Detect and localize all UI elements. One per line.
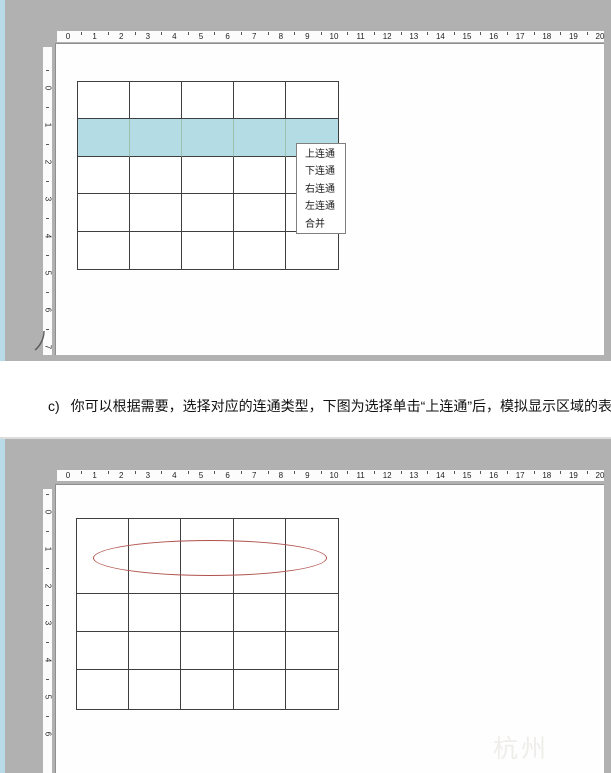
ruler-number: 2	[43, 582, 53, 591]
ruler-number: 19	[565, 471, 581, 480]
table-cell[interactable]	[182, 232, 234, 269]
ruler-tick	[587, 471, 588, 474]
ruler-number: 18	[539, 32, 555, 41]
ruler-tick	[46, 218, 49, 219]
context-menu-item[interactable]: 上连通	[305, 146, 345, 163]
ruler-tick	[560, 32, 561, 35]
ruler-tick	[241, 471, 242, 474]
ruler-number: 6	[43, 306, 53, 315]
table-cell[interactable]	[234, 157, 286, 194]
ruler-tick	[427, 32, 428, 35]
table-cell[interactable]	[181, 670, 233, 708]
context-menu-item[interactable]: 下连通	[305, 163, 345, 180]
window-edge-strip	[0, 0, 5, 361]
ruler-tick	[46, 70, 49, 71]
ruler-tick	[374, 471, 375, 474]
window-edge-strip	[0, 439, 5, 773]
ruler-tick	[534, 471, 535, 474]
ruler-number: 1	[43, 545, 53, 554]
ruler-number: 1	[43, 121, 53, 130]
screenshot-after: 01234567891011121314151617181920 0123456…	[0, 437, 611, 773]
ruler-number: 6	[220, 471, 236, 480]
table-cell[interactable]	[234, 632, 286, 670]
context-menu: 上连通下连通右连通左连通合并	[296, 143, 346, 234]
ruler-tick	[108, 471, 109, 474]
ruler-tick	[108, 32, 109, 35]
ruler-number: 5	[193, 471, 209, 480]
ruler-tick	[214, 471, 215, 474]
vertical-ruler: 0123456	[43, 489, 52, 773]
ruler-number: 1	[87, 32, 103, 41]
table-cell[interactable]	[130, 232, 182, 269]
caption-list-marker: c)	[48, 396, 60, 417]
ruler-tick	[161, 471, 162, 474]
vertical-ruler: 01234567	[43, 47, 52, 355]
horizontal-ruler: 01234567891011121314151617181920	[57, 470, 604, 481]
ruler-number: 7	[246, 32, 262, 41]
ruler-number: 20	[592, 32, 608, 41]
table-cell[interactable]	[182, 194, 234, 231]
table-cell[interactable]	[286, 232, 338, 269]
ruler-tick	[268, 471, 269, 474]
ruler-tick	[507, 32, 508, 35]
ruler-number: 15	[459, 471, 475, 480]
ruler-tick	[454, 471, 455, 474]
ruler-number: 5	[43, 269, 53, 278]
context-menu-item[interactable]: 合并	[305, 216, 345, 233]
table-cell[interactable]	[78, 194, 130, 231]
ruler-tick	[46, 181, 49, 182]
table-cell[interactable]	[78, 119, 130, 156]
ruler-tick	[214, 32, 215, 35]
ruler-tick	[374, 32, 375, 35]
ruler-number: 12	[379, 32, 395, 41]
ruler-number: 8	[273, 471, 289, 480]
ruler-number: 19	[565, 32, 581, 41]
ruler-tick	[480, 32, 481, 35]
ruler-number: 0	[60, 471, 76, 480]
ruler-tick	[188, 32, 189, 35]
ruler-number: 3	[140, 32, 156, 41]
table-cell[interactable]	[77, 594, 129, 632]
horizontal-ruler: 01234567891011121314151617181920	[57, 31, 604, 42]
table-cell[interactable]	[182, 157, 234, 194]
ruler-number: 4	[166, 471, 182, 480]
table-cell[interactable]	[182, 119, 234, 156]
ruler-tick	[587, 32, 588, 35]
annotation-ellipse	[93, 540, 327, 576]
ruler-number: 4	[43, 232, 53, 241]
table-cell[interactable]	[181, 594, 233, 632]
ruler-number: 20	[592, 471, 608, 480]
ruler-number: 3	[140, 471, 156, 480]
table-cell[interactable]	[78, 232, 130, 269]
table-cell[interactable]	[77, 632, 129, 670]
ruler-tick	[427, 471, 428, 474]
ruler-tick	[46, 716, 49, 717]
ruler-tick	[81, 471, 82, 474]
ruler-tick	[347, 32, 348, 35]
table-cell[interactable]	[234, 82, 286, 119]
caption-text: c) 你可以根据需要，选择对应的连通类型，下图为选择单击“上连通”后，模拟显示区…	[48, 396, 611, 417]
ruler-number: 13	[406, 32, 422, 41]
ruler-number: 2	[113, 32, 129, 41]
ruler-number: 10	[326, 32, 342, 41]
ruler-number: 1	[87, 471, 103, 480]
table-cell[interactable]	[181, 632, 233, 670]
screenshot-before: 01234567891011121314151617181920 0123456…	[0, 0, 611, 361]
ruler-tick	[46, 107, 49, 108]
ruler-number: 11	[353, 32, 369, 41]
ruler-tick	[321, 32, 322, 35]
ruler-tick	[294, 471, 295, 474]
table-cell[interactable]	[286, 82, 338, 119]
ruler-number: 4	[43, 656, 53, 665]
ruler-number: 2	[113, 471, 129, 480]
table-cell[interactable]	[78, 82, 130, 119]
ruler-tick	[46, 531, 49, 532]
ruler-number: 0	[60, 32, 76, 41]
ruler-number: 7	[246, 471, 262, 480]
ruler-tick	[507, 471, 508, 474]
ruler-tick	[46, 642, 49, 643]
ruler-number: 15	[459, 32, 475, 41]
ruler-number: 2	[43, 158, 53, 167]
table-cell[interactable]	[286, 670, 338, 708]
ruler-tick	[480, 471, 481, 474]
ruler-tick	[135, 471, 136, 474]
ruler-tick	[46, 144, 49, 145]
context-menu-item[interactable]: 右连通	[305, 181, 345, 198]
ruler-tick	[347, 471, 348, 474]
table-cell[interactable]	[129, 632, 181, 670]
table-cell[interactable]	[234, 119, 286, 156]
ruler-tick	[321, 471, 322, 474]
ruler-number: 8	[273, 32, 289, 41]
ruler-tick	[401, 32, 402, 35]
caption-body: 你可以根据需要，选择对应的连通类型，下图为选择单击“上连通”后，模拟显示区域的表…	[71, 396, 611, 417]
ruler-number: 9	[299, 471, 315, 480]
ruler-number: 6	[43, 730, 53, 739]
table-cell[interactable]	[130, 194, 182, 231]
ruler-tick	[46, 679, 49, 680]
ruler-number: 16	[486, 32, 502, 41]
ruler-number: 13	[406, 471, 422, 480]
ruler-number: 0	[43, 508, 53, 517]
ruler-number: 6	[220, 32, 236, 41]
ruler-number: 12	[379, 471, 395, 480]
ruler-tick	[241, 32, 242, 35]
table-cell[interactable]	[182, 82, 234, 119]
ruler-number: 10	[326, 471, 342, 480]
caption-band: c) 你可以根据需要，选择对应的连通类型，下图为选择单击“上连通”后，模拟显示区…	[0, 361, 611, 437]
ruler-number: 9	[299, 32, 315, 41]
ruler-number: 14	[432, 471, 448, 480]
table-cell[interactable]	[234, 594, 286, 632]
ruler-tick	[560, 471, 561, 474]
ruler-number: 3	[43, 195, 53, 204]
ruler-number: 5	[193, 32, 209, 41]
table-cell[interactable]	[234, 232, 286, 269]
ruler-tick	[46, 605, 49, 606]
ruler-number: 17	[512, 32, 528, 41]
table-cell[interactable]	[129, 594, 181, 632]
ruler-tick	[46, 494, 49, 495]
ruler-tick	[81, 32, 82, 35]
table-cell[interactable]	[130, 82, 182, 119]
ruler-number: 3	[43, 619, 53, 628]
ruler-number: 0	[43, 84, 53, 93]
ruler-number: 4	[166, 32, 182, 41]
ruler-end-mark	[34, 330, 48, 352]
ruler-number: 11	[353, 471, 369, 480]
ruler-tick	[161, 32, 162, 35]
ruler-tick	[268, 32, 269, 35]
ruler-tick	[188, 471, 189, 474]
ruler-tick	[46, 292, 49, 293]
table-cell[interactable]	[286, 594, 338, 632]
ruler-number: 5	[43, 693, 53, 702]
table-cell[interactable]	[129, 670, 181, 708]
table-cell[interactable]	[286, 632, 338, 670]
ruler-tick	[454, 32, 455, 35]
ruler-number: 16	[486, 471, 502, 480]
watermark-text: 杭州	[493, 729, 549, 765]
ruler-number: 17	[512, 471, 528, 480]
ruler-tick	[401, 471, 402, 474]
context-menu-item[interactable]: 左连通	[305, 198, 345, 215]
table-cell[interactable]	[78, 157, 130, 194]
ruler-tick	[46, 255, 49, 256]
ruler-tick	[534, 32, 535, 35]
ruler-number: 14	[432, 32, 448, 41]
table-cell[interactable]	[130, 157, 182, 194]
table-cell[interactable]	[130, 119, 182, 156]
tutorial-page: 01234567891011121314151617181920 0123456…	[0, 0, 611, 773]
table-cell[interactable]	[77, 670, 129, 708]
table-cell[interactable]	[234, 194, 286, 231]
ruler-tick	[294, 32, 295, 35]
table-cell[interactable]	[234, 670, 286, 708]
ruler-number: 18	[539, 471, 555, 480]
ruler-tick	[135, 32, 136, 35]
ruler-tick	[46, 568, 49, 569]
